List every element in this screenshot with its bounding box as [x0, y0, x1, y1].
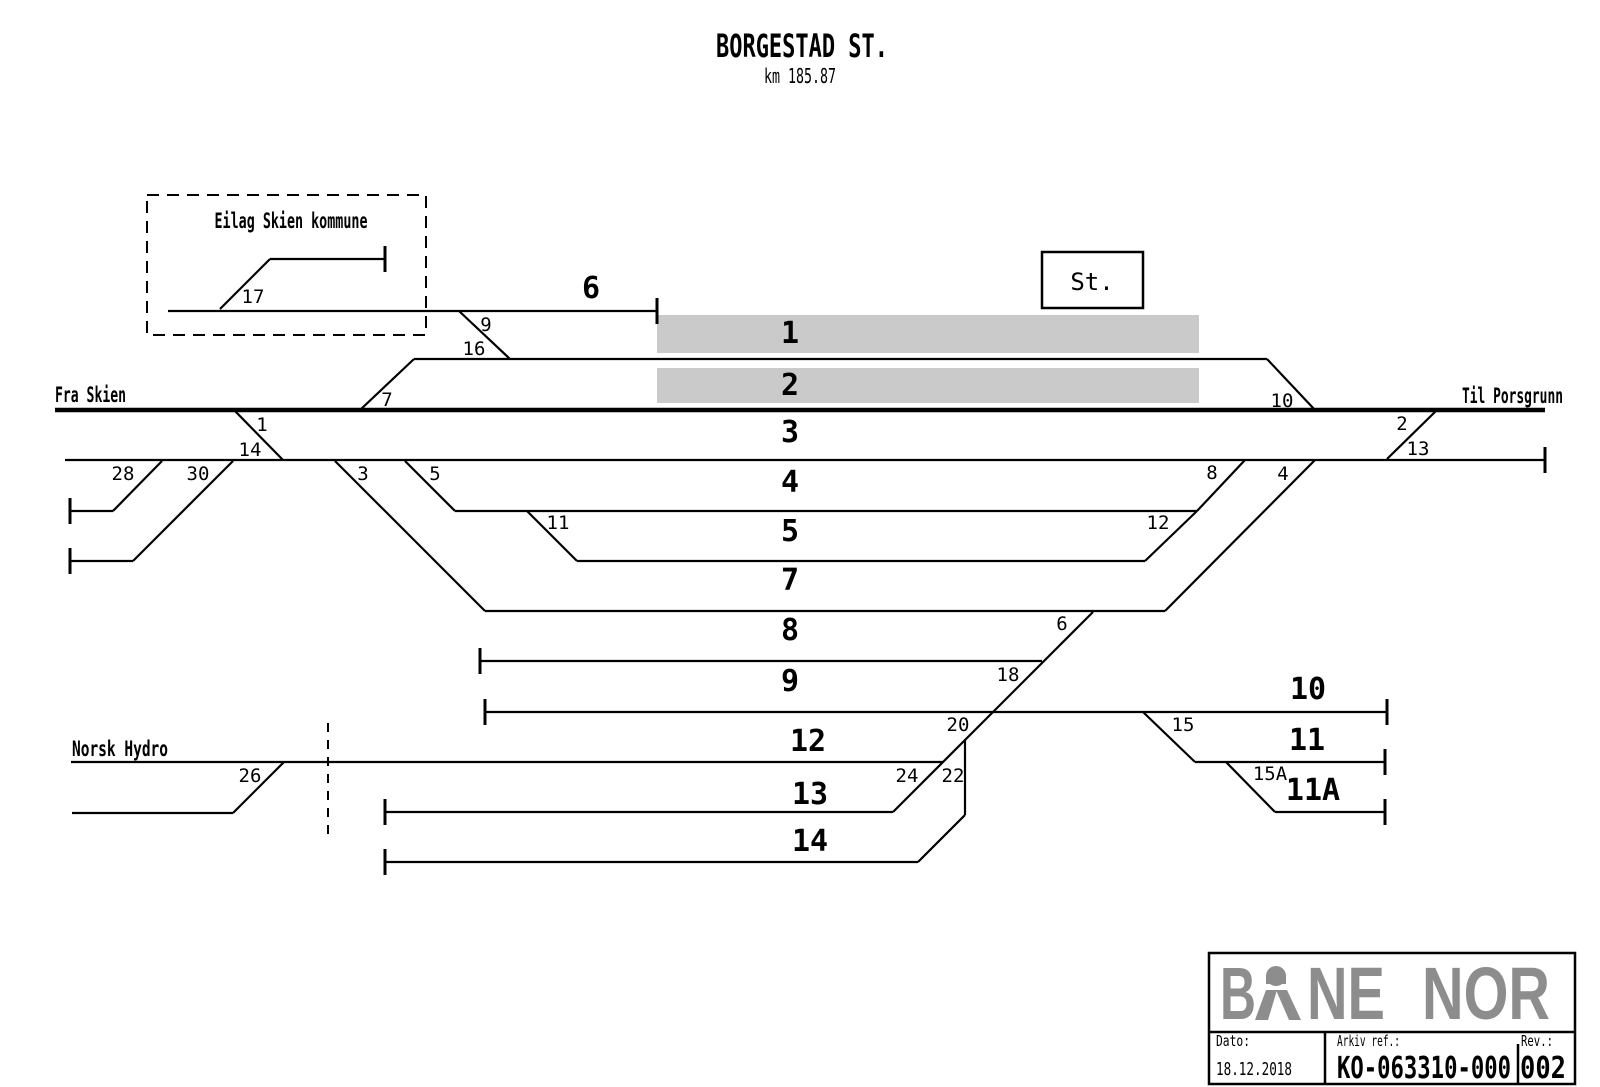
switch-10-label: 10 [1271, 390, 1294, 412]
station-km: km 185.87 [764, 64, 836, 88]
track-9-label: 9 [781, 664, 799, 699]
eilag-area-label: Eilag Skien kommune [215, 209, 368, 233]
track-14-label: 14 [792, 824, 828, 859]
switch-12-label: 12 [1147, 512, 1170, 534]
page-title: BORGESTAD ST. [716, 27, 888, 65]
direction-from-label: Fra Skien [55, 383, 126, 407]
direction-to-label: Til Porsgrunn [1462, 384, 1563, 408]
switch-7-label: 7 [381, 389, 392, 411]
switch-6-label: 6 [1056, 613, 1067, 635]
switch-3-label: 3 [357, 463, 368, 485]
logo-text-ne: NE [1307, 952, 1385, 1035]
date-value: 18.12.2018 [1216, 1059, 1292, 1080]
switch-24-label: 24 [896, 765, 919, 787]
switch-1-label: 1 [256, 414, 267, 436]
switch-13-label: 13 [1407, 438, 1430, 460]
track-12-label: 12 [790, 724, 826, 759]
track-10-label: 10 [1290, 672, 1326, 707]
switch-14-label: 14 [239, 439, 262, 461]
norsk-hydro-label: Norsk Hydro [72, 737, 168, 761]
switch-2-label: 2 [1396, 413, 1407, 435]
switch-22-label: 22 [942, 765, 965, 787]
switch-4-diagonal [1165, 460, 1315, 611]
logo-letter-a-icon [1255, 990, 1277, 1020]
switch-15A-label: 15A [1253, 763, 1288, 785]
track-diagram: BORGESTAD ST. km 185.87 Fra Skien Til Po… [0, 0, 1600, 1087]
logo-letter-a-icon [1266, 976, 1286, 984]
switch-11-label: 11 [547, 512, 570, 534]
platform-track-2 [657, 368, 1199, 403]
switch-15-label: 15 [1172, 714, 1195, 736]
switch-4-label: 4 [1277, 463, 1288, 485]
archive-ref-label: Arkiv ref.: [1337, 1032, 1400, 1050]
revision-label: Rev.: [1521, 1032, 1553, 1050]
platform-track-1 [657, 315, 1199, 353]
switch-26-label: 26 [239, 765, 262, 787]
switch-18-label: 18 [997, 664, 1020, 686]
switch-8-label: 8 [1206, 462, 1217, 484]
switch-20-label: 20 [947, 714, 970, 736]
track-6-label: 6 [582, 271, 600, 306]
track-5-label: 5 [781, 514, 799, 549]
track-11-label: 11 [1289, 723, 1325, 758]
date-label: Dato: [1216, 1032, 1250, 1050]
switch-5-label: 5 [429, 463, 440, 485]
track-8-label: 8 [781, 613, 799, 648]
track-13-label: 13 [792, 777, 828, 812]
switch-30-label: 30 [187, 463, 210, 485]
track-7-label: 7 [781, 563, 799, 598]
switch-8-diagonal [1197, 460, 1245, 511]
switch-28-label: 28 [112, 463, 135, 485]
track-4-label: 4 [781, 465, 799, 500]
logo-letter-a-icon [1276, 990, 1301, 1020]
switch-9-label: 9 [480, 314, 491, 336]
station-building-label: St. [1070, 268, 1113, 296]
archive-ref-value: KO-063310-000 [1337, 1051, 1511, 1086]
switch-17-label: 17 [242, 286, 265, 308]
track-11A-label: 11A [1286, 773, 1340, 808]
track-1-label: 1 [781, 316, 799, 351]
track-3-label: 3 [781, 415, 799, 450]
track-diagram-canvas: BORGESTAD ST. km 185.87 Fra Skien Til Po… [0, 0, 1600, 1087]
switch-22-diagonal [918, 815, 965, 862]
revision-value: 002 [1520, 1051, 1566, 1086]
logo-text-nor: NOR [1422, 952, 1550, 1035]
logo-text-b: B [1220, 952, 1256, 1035]
switch-16-label: 16 [463, 338, 486, 360]
track-2-label: 2 [781, 368, 799, 403]
